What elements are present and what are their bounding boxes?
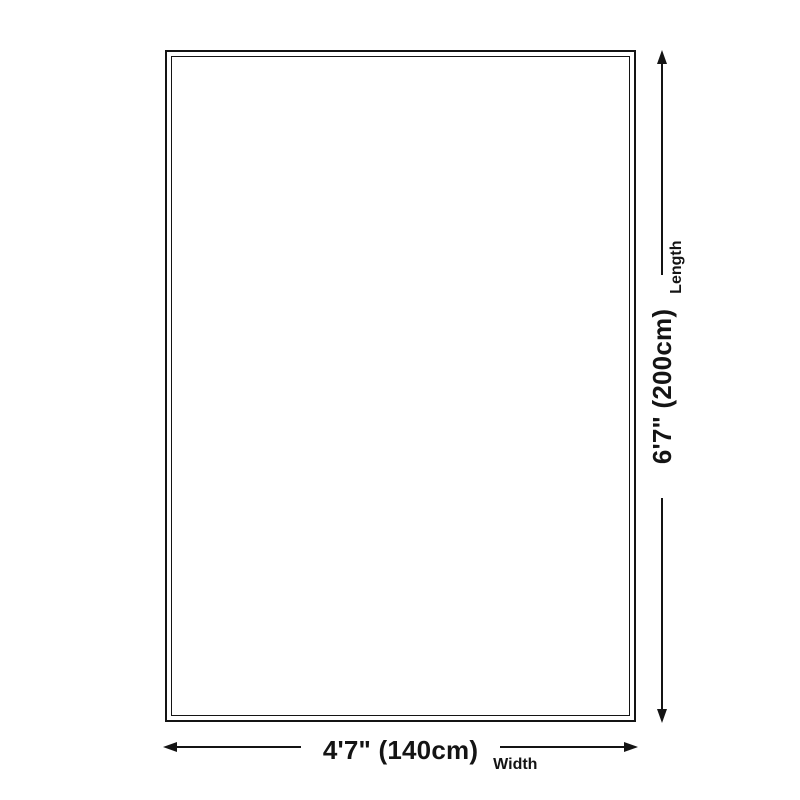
length-dimension-text: 6'7" (200cm) Length	[647, 309, 677, 464]
width-value: 4'7" (140cm)	[323, 735, 478, 765]
arrowhead-up-icon	[657, 50, 667, 64]
width-dimension-line-right	[500, 746, 624, 749]
length-dimension: 6'7" (200cm) Length	[638, 50, 686, 723]
rug-inner-border	[171, 56, 630, 716]
arrowhead-left-icon	[163, 742, 177, 752]
width-label: Width	[493, 757, 537, 773]
width-dimension: 4'7" (140cm) Width	[163, 723, 638, 771]
arrowhead-down-icon	[657, 709, 667, 723]
dimension-diagram: 4'7" (140cm) Width 6'7" (200cm) Length	[0, 0, 800, 800]
length-value: 6'7" (200cm)	[647, 309, 677, 464]
width-dimension-line-left	[177, 746, 301, 749]
length-label: Length	[669, 241, 685, 294]
arrowhead-right-icon	[624, 742, 638, 752]
length-dimension-line-bottom	[661, 498, 664, 709]
rug-outline	[165, 50, 636, 722]
length-dimension-line-top	[661, 64, 664, 275]
width-dimension-text: 4'7" (140cm) Width	[323, 735, 478, 765]
